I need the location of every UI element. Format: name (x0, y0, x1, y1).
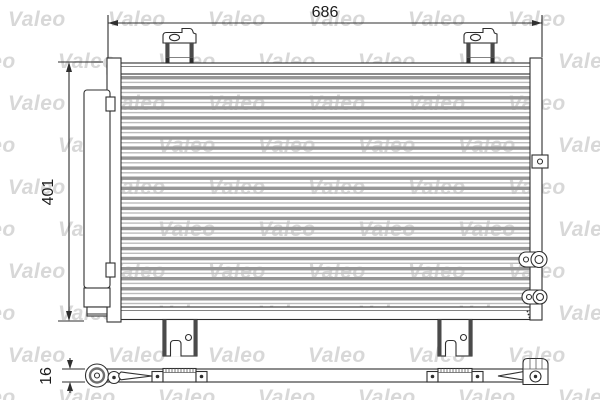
right-header-tank (530, 58, 542, 320)
core-tube (121, 207, 530, 210)
drier-foot (87, 307, 107, 316)
dimension-depth-label: 16 (38, 367, 55, 385)
core-tube (121, 257, 530, 260)
arrowhead-up (67, 382, 73, 391)
fitting-port-inner (537, 294, 544, 301)
port-fitting-upper (519, 252, 547, 268)
core-fin-line (121, 293, 530, 294)
arrowhead-left (108, 20, 118, 26)
mounting-bracket-top-right (464, 29, 497, 64)
core-fin-line (121, 182, 530, 183)
core-tube (121, 136, 530, 139)
core-tube (121, 96, 530, 99)
core-tube (121, 126, 530, 129)
bracket-foot (491, 58, 495, 63)
core-tube (121, 177, 530, 180)
core-fin-line (121, 212, 530, 213)
core-tube (121, 297, 530, 300)
core-fin-line (121, 172, 530, 173)
core-tubes (121, 76, 530, 304)
core-fin-line (121, 273, 530, 274)
mounting-bracket-bottom-left (163, 320, 197, 357)
mounting-bracket-top-left (163, 29, 196, 64)
mounting-bracket-bottom-right (438, 320, 472, 357)
arrowhead-down (67, 360, 73, 369)
core-fin-line (121, 202, 530, 203)
foot-tab-dot (156, 375, 160, 379)
bracket-edge (438, 320, 442, 357)
drier-body (84, 90, 110, 288)
bottom-profile-view: 16 (38, 358, 548, 393)
bracket-edge (194, 320, 198, 357)
core-tube (121, 217, 530, 220)
profile-fitting-small-dot (112, 376, 116, 380)
foot-tab-dot (476, 375, 480, 379)
bracket-cap (163, 29, 196, 44)
core-fin-line (121, 222, 530, 223)
dimension-height-label: 401 (40, 179, 57, 206)
fitting-port-inner (535, 256, 543, 264)
core-fin-line (121, 132, 530, 133)
bracket-cap (464, 29, 497, 44)
core-tube (121, 247, 530, 250)
core-fin-line (121, 263, 530, 264)
core-tube (121, 267, 530, 270)
drier-tab-top (106, 97, 115, 111)
core-fin-line (121, 122, 530, 123)
break-dot (528, 314, 530, 316)
dimension-depth: 16 (38, 358, 85, 393)
core-fin-line (121, 283, 530, 284)
core-fin-line (121, 192, 530, 193)
front-view (84, 29, 548, 357)
drawing-canvas: ValeoValeoValeoValeoValeoValeoValeoValeo… (0, 0, 600, 400)
foot-tab-dot (431, 375, 435, 379)
arrowhead-top (66, 62, 72, 72)
foot-tab-dot (200, 375, 204, 379)
bracket-stem (166, 43, 193, 63)
core-tube (121, 237, 530, 240)
core-fin-line (121, 243, 530, 244)
core-tube (121, 197, 530, 200)
side-bracket-plate (532, 155, 548, 168)
core-tube (121, 277, 530, 280)
core-fin-line (121, 253, 530, 254)
foot-plate (438, 369, 472, 383)
connector-block (523, 359, 548, 385)
arrowhead-right (532, 20, 542, 26)
bracket-notch (171, 341, 182, 357)
core-bottom-bar (107, 307, 540, 320)
core-fin-line (121, 102, 530, 103)
break-dot (527, 311, 529, 313)
core-tube (121, 116, 530, 119)
core-fin-line (121, 82, 530, 83)
core-fin-line (121, 162, 530, 163)
core-fin-line (121, 232, 530, 233)
bracket-foot (467, 58, 471, 63)
condenser-drawing: 686 401 (0, 0, 600, 400)
core-fin-line (121, 142, 530, 143)
core-fin-line (121, 303, 530, 304)
bracket-edge (163, 320, 167, 357)
bracket-stem (467, 43, 494, 63)
dimension-width-label: 686 (312, 4, 339, 21)
receiver-drier (84, 90, 115, 316)
port-fitting-lower (522, 290, 547, 304)
core-top-bar (107, 63, 540, 74)
bracket-edge (469, 320, 473, 357)
core-tube (121, 227, 530, 230)
core-tube (121, 187, 530, 190)
core-tube (121, 146, 530, 149)
core-tube (121, 86, 530, 89)
drier-tab-bottom (106, 263, 115, 277)
core-tube (121, 156, 530, 159)
foot-plate (163, 369, 196, 383)
bracket-notch (446, 341, 457, 357)
core-fin-line (121, 152, 530, 153)
drier-cap (84, 288, 110, 307)
core-fin-line (121, 112, 530, 113)
arrowhead-bottom (66, 311, 72, 321)
core-fin-line (121, 92, 530, 93)
connector-hole-dot (534, 375, 537, 378)
core-tube (121, 166, 530, 169)
bracket-foot (166, 58, 170, 63)
bracket-foot (190, 58, 194, 63)
core-tube (121, 287, 530, 290)
core-tube (121, 106, 530, 109)
side-bracket (532, 155, 548, 168)
core-tube (121, 76, 530, 79)
